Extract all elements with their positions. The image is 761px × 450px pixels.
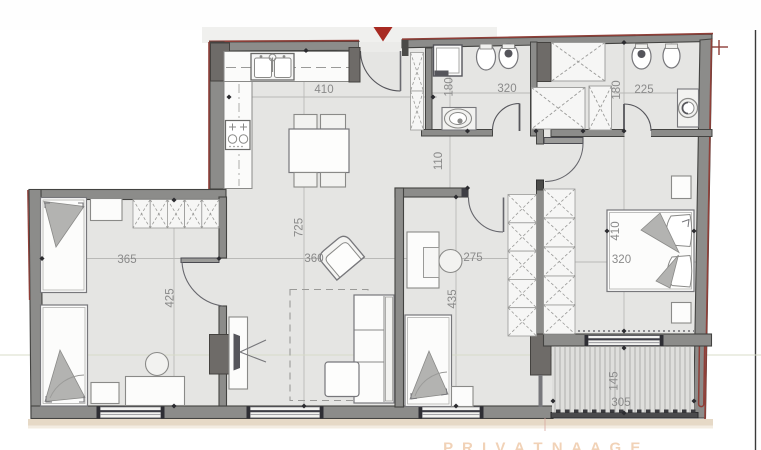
svg-text:360: 360 [304, 253, 323, 265]
svg-text:365: 365 [117, 254, 136, 266]
svg-text:P R I V A T N A A G E: P R I V A T N A A G E [443, 440, 643, 450]
svg-text:425: 425 [165, 288, 177, 307]
svg-text:110: 110 [433, 152, 445, 170]
svg-text:320: 320 [497, 83, 516, 95]
svg-text:180: 180 [444, 77, 456, 96]
svg-text:435: 435 [447, 289, 459, 308]
svg-text:225: 225 [634, 84, 653, 96]
svg-text:275: 275 [463, 252, 482, 264]
svg-text:180: 180 [611, 80, 623, 99]
svg-text:410: 410 [314, 84, 333, 96]
svg-text:410: 410 [610, 221, 622, 240]
svg-text:305: 305 [611, 397, 630, 409]
svg-text:320: 320 [612, 254, 631, 266]
svg-text:145: 145 [609, 371, 621, 390]
svg-text:725: 725 [294, 218, 306, 237]
